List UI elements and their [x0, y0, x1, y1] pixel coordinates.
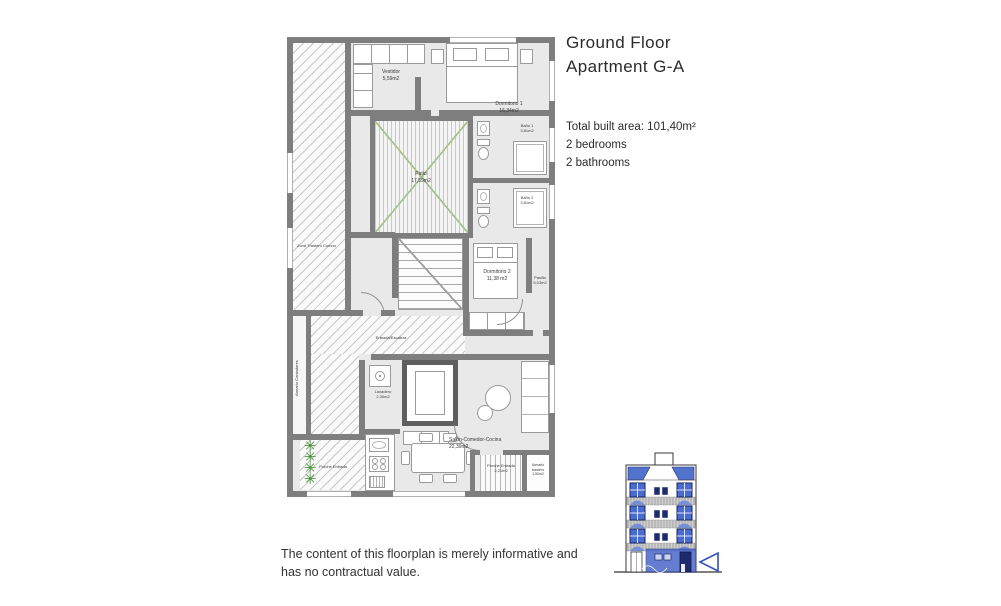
room-label-bano-2: Baño 23,81m2 — [507, 195, 547, 205]
room-label-lavadero: Lavadero2,30m2 — [363, 389, 403, 399]
room-label-pasillo: Pasillo5,03m2 — [527, 275, 553, 285]
wall — [306, 316, 311, 434]
page-title: Ground Floor Apartment G-A — [566, 31, 685, 79]
floorplan-page: ✳✳✳✳ Vestidor5,59m2 Dormitorio 116,34m2 … — [0, 0, 1001, 606]
window — [549, 365, 555, 413]
wall — [365, 429, 400, 434]
room-label-porche-sur: Porche Entrada2,21m2 — [479, 463, 523, 473]
elevation-drawing — [612, 449, 724, 579]
shower-bano-1 — [513, 141, 547, 175]
sink-basin — [480, 124, 487, 133]
sink-icon — [477, 189, 490, 204]
room-label-armario-trastero: Armario trastero1,50m2 — [527, 463, 549, 477]
pillow — [453, 48, 477, 61]
window — [287, 228, 293, 268]
nightstand — [520, 49, 533, 64]
stove-burners — [371, 458, 387, 470]
window — [450, 37, 516, 43]
burner — [372, 464, 378, 470]
kitchen-sink-basin — [372, 441, 386, 449]
wall — [473, 178, 549, 183]
wall — [463, 330, 533, 336]
bed-dormitorio-1 — [446, 43, 518, 103]
kitchen-sink-icon — [369, 438, 389, 452]
rooftop-box — [655, 453, 673, 465]
toilet-icon — [478, 215, 489, 228]
room-label-bano-1: Baño 13,81m2 — [507, 123, 547, 133]
zone-zona-trastero — [293, 43, 345, 310]
shower-bano-2 — [513, 188, 547, 228]
title-line-2: Apartment G-A — [566, 55, 685, 79]
chair — [419, 474, 433, 483]
floor-plan: ✳✳✳✳ Vestidor5,59m2 Dormitorio 116,34m2 … — [287, 37, 555, 497]
wall — [351, 232, 395, 238]
building-elevation — [612, 449, 724, 579]
window — [287, 153, 293, 193]
disclaimer-line-1: The content of this floorplan is merely … — [281, 545, 578, 563]
wall — [359, 360, 365, 440]
chair — [419, 433, 433, 442]
wall — [345, 43, 351, 310]
bed-fold-line — [447, 66, 517, 67]
chair — [401, 451, 410, 465]
sink-icon — [477, 121, 490, 136]
room-label-vestidor: Vestidor5,59m2 — [365, 69, 417, 82]
window — [307, 491, 351, 497]
window — [549, 128, 555, 162]
staircase — [398, 238, 463, 310]
wall — [293, 310, 351, 316]
window — [549, 61, 555, 101]
nightstand — [431, 49, 444, 64]
room-label-dormitorio-2: Dormitorio 211,38 m2 — [467, 269, 527, 282]
location-arrow-icon — [700, 553, 718, 571]
bedrooms-count: 2 bedrooms — [566, 137, 696, 155]
toilet-tank — [477, 139, 490, 146]
wall — [371, 354, 549, 360]
room-label-patio: Patio17,59m2 — [391, 171, 451, 184]
room-label-porche-oeste: Porche Entrada — [307, 464, 359, 469]
elevator-car — [415, 371, 445, 415]
stove-icon — [369, 456, 389, 472]
window — [549, 185, 555, 219]
toilet-tank — [477, 207, 490, 214]
pillow — [497, 247, 513, 258]
zone-entrada-escalera-2 — [311, 354, 359, 434]
washing-machine-icon — [369, 365, 391, 387]
disclaimer: The content of this floorplan is merely … — [281, 545, 578, 581]
elevator-shaft — [402, 360, 458, 426]
sink-basin — [480, 192, 487, 201]
bed-fold-line — [474, 262, 517, 263]
title-line-1: Ground Floor — [566, 31, 685, 55]
washer-door — [375, 371, 385, 381]
room-label-armario-contadores: Armario Contadores — [294, 325, 305, 431]
disclaimer-line-2: has no contractual value. — [281, 563, 578, 581]
window — [393, 491, 465, 497]
room-label-salon: Salón-Comedor-Cocina22,39m2 — [449, 437, 527, 450]
bathrooms-count: 2 bathrooms — [566, 155, 696, 173]
coffee-table-small — [477, 405, 493, 421]
toilet-icon — [478, 147, 489, 160]
small-appliance — [369, 476, 385, 488]
burner — [380, 464, 386, 470]
total-area: Total built area: 101,40m² — [566, 119, 696, 137]
wall — [392, 238, 398, 298]
summary-block: Total built area: 101,40m² 2 bedrooms 2 … — [566, 119, 696, 172]
wall — [293, 434, 359, 440]
wall — [543, 330, 549, 336]
wall — [351, 110, 431, 116]
pillow — [477, 247, 493, 258]
wall — [381, 310, 395, 316]
wall — [463, 238, 469, 336]
shower-tray — [516, 144, 544, 172]
room-label-zona-trastero: Zona Trastero Común — [297, 243, 379, 248]
wall — [470, 455, 475, 491]
room-label-dormitorio-1: Dormitorio 116,34m2 — [479, 101, 539, 114]
wall — [351, 310, 363, 316]
closet-vestidor-top — [353, 44, 425, 64]
chair — [443, 474, 457, 483]
sofa — [521, 361, 549, 433]
room-label-entrada: Entrada/Escalera — [349, 335, 433, 340]
pillow — [485, 48, 509, 61]
